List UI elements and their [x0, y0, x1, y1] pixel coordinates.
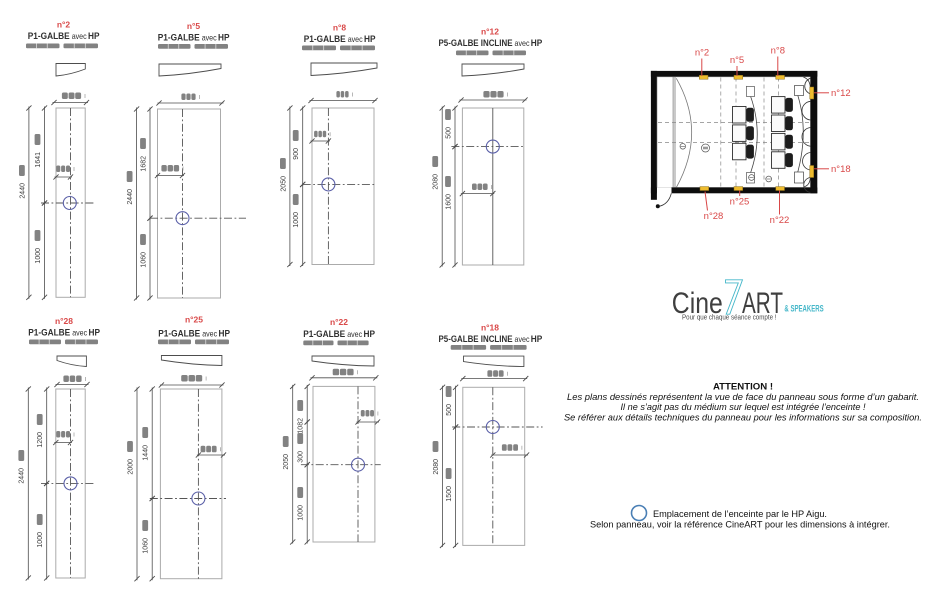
svg-text:HP: HP [531, 333, 543, 344]
svg-text:n°2: n°2 [57, 20, 71, 30]
svg-text:HP: HP [218, 32, 230, 43]
svg-text:n°28: n°28 [704, 211, 724, 222]
svg-text:n°18: n°18 [481, 323, 499, 333]
svg-text:2080: 2080 [433, 174, 440, 190]
svg-text:P1-GALBE: P1-GALBE [28, 327, 70, 338]
svg-text:P1-GALBE: P1-GALBE [303, 328, 345, 339]
svg-text:avec: avec [515, 38, 530, 48]
svg-text:2440: 2440 [127, 189, 134, 205]
svg-text:Selon panneau, voir la référen: Selon panneau, voir la référence CineART… [590, 520, 890, 530]
svg-text:2050: 2050 [283, 454, 290, 470]
svg-text:HP: HP [531, 37, 543, 48]
svg-text:n°8: n°8 [333, 23, 347, 33]
svg-text:avec: avec [347, 329, 362, 339]
svg-text:n°25: n°25 [730, 197, 750, 208]
svg-text:2000: 2000 [127, 459, 134, 475]
svg-text:Emplacement de l’enceinte par: Emplacement de l’enceinte par le HP Aigu… [653, 509, 827, 519]
svg-text:n°18: n°18 [831, 164, 851, 175]
svg-text:2440: 2440 [19, 468, 26, 484]
svg-text:1682: 1682 [140, 156, 147, 172]
svg-text:avec: avec [72, 31, 87, 41]
svg-text:n°22: n°22 [770, 215, 790, 226]
svg-text:n°28: n°28 [55, 316, 73, 326]
svg-text:1000: 1000 [37, 532, 44, 548]
svg-text:avec: avec [72, 328, 87, 338]
svg-text:1060: 1060 [140, 252, 147, 268]
svg-text:300: 300 [298, 451, 305, 463]
svg-text:1500: 1500 [446, 486, 453, 502]
svg-text:1060: 1060 [143, 538, 150, 554]
svg-text:P5-GALBE INCLINE: P5-GALBE INCLINE [439, 333, 513, 344]
svg-text:n°8: n°8 [771, 46, 785, 57]
svg-text:Se référer aux détails techniq: Se référer aux détails techniques du pan… [564, 412, 922, 422]
svg-text:2440: 2440 [19, 183, 26, 199]
svg-text:n°5: n°5 [730, 55, 744, 66]
svg-text:2080: 2080 [433, 459, 440, 475]
svg-text:900: 900 [293, 148, 300, 160]
svg-text:n°25: n°25 [185, 315, 203, 325]
svg-text:n°5: n°5 [187, 21, 201, 31]
svg-text:HP: HP [88, 30, 100, 41]
svg-text:1000: 1000 [35, 248, 42, 264]
svg-text:n°12: n°12 [831, 88, 851, 99]
svg-text:Les plans dessinés représenten: Les plans dessinés représentent la vue d… [567, 392, 919, 402]
svg-text:avec: avec [348, 34, 363, 44]
svg-text:& SPEAKERS: & SPEAKERS [784, 304, 823, 315]
svg-text:P1-GALBE: P1-GALBE [28, 30, 70, 41]
svg-text:P1-GALBE: P1-GALBE [304, 33, 346, 44]
svg-text:HP: HP [89, 327, 101, 338]
svg-text:n°12: n°12 [481, 27, 499, 37]
svg-text:Pour que chaque séance compte: Pour que chaque séance compte ! [682, 315, 777, 322]
svg-text:1000: 1000 [293, 212, 300, 228]
svg-text:1641: 1641 [35, 152, 42, 168]
svg-text:avec: avec [202, 33, 217, 43]
svg-text:avec: avec [202, 329, 217, 339]
svg-text:avec: avec [515, 334, 530, 344]
svg-text:500: 500 [446, 404, 453, 416]
svg-text:P1-GALBE: P1-GALBE [158, 32, 200, 43]
svg-text:P1-GALBE: P1-GALBE [158, 328, 200, 339]
svg-text:1000: 1000 [298, 505, 305, 521]
svg-text:1440: 1440 [143, 445, 150, 461]
svg-text:1082: 1082 [298, 418, 305, 434]
svg-text:n°22: n°22 [330, 317, 348, 327]
svg-text:P5-GALBE INCLINE: P5-GALBE INCLINE [439, 37, 513, 48]
svg-text:Il ne s’agit pas du médium sur: Il ne s’agit pas du médium sur lequel es… [621, 402, 866, 412]
svg-text:n°2: n°2 [695, 48, 709, 59]
svg-text:HP: HP [364, 33, 376, 44]
svg-text:2050: 2050 [280, 176, 287, 192]
svg-text:1600: 1600 [445, 194, 452, 210]
svg-text:1200: 1200 [37, 432, 44, 448]
svg-text:HP: HP [219, 328, 231, 339]
svg-text:500: 500 [445, 127, 452, 139]
svg-text:ATTENTION !: ATTENTION ! [713, 382, 773, 393]
svg-text:HP: HP [364, 328, 376, 339]
